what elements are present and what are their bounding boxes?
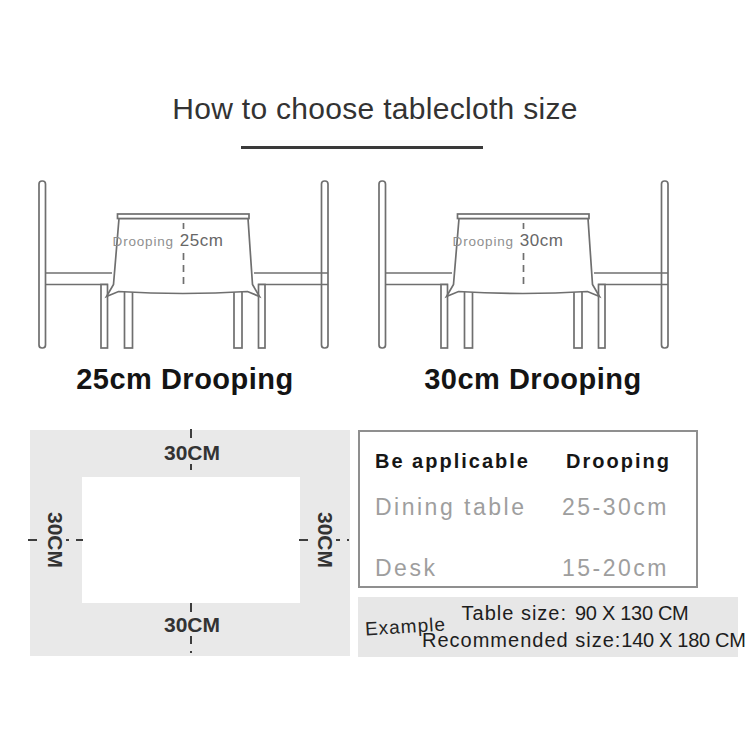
recommended-size-label: Recommended size: — [422, 629, 621, 651]
page-title: How to choose tablecloth size — [0, 92, 750, 126]
table-and-chairs-drawing — [379, 181, 668, 348]
drooping-word: Drooping — [453, 234, 514, 249]
dimension-label-right: 30CM — [314, 507, 336, 573]
table-size-value: 90 X 130 CM — [575, 602, 688, 624]
spec-row-dining-table-label: Dining table — [375, 494, 526, 521]
recommended-size-value: 140 X 180 CM — [621, 629, 745, 651]
tablecloth-size-guide: How to choose tablecloth size — [0, 0, 750, 750]
drooping-spec-table: Be applicable Drooping Dining table 25-3… — [358, 430, 698, 588]
example-box: Example Table size:90 X 130 CM Recommend… — [358, 597, 738, 657]
drooping-annotation: Drooping25cm — [113, 231, 224, 250]
table-scene-30cm: Drooping30cm — [360, 170, 700, 360]
table-scene-25cm: Drooping25cm — [20, 170, 360, 360]
drooping-annotation: Drooping30cm — [453, 231, 564, 250]
drooping-value: 30cm — [520, 231, 564, 250]
spec-header-drooping: Drooping — [566, 450, 671, 473]
dimension-label-bottom: 30CM — [159, 614, 225, 636]
table-top-rectangle — [82, 477, 300, 603]
title-underline — [241, 146, 483, 149]
table-and-chairs-drawing — [39, 181, 328, 348]
caption-30cm-drooping: 30cm Drooping — [383, 363, 683, 396]
example-recommended-line: Recommended size:140 X 180 CM — [422, 627, 728, 654]
example-lines: Table size:90 X 130 CM Recommended size:… — [422, 600, 728, 654]
spec-row-desk-value: 15-20cm — [562, 555, 669, 582]
drooping-word: Drooping — [113, 234, 174, 249]
dimension-label-left: 30CM — [44, 507, 66, 573]
drooping-value: 25cm — [180, 231, 224, 250]
caption-25cm-drooping: 25cm Drooping — [35, 363, 335, 396]
table-size-label: Table size: — [462, 602, 568, 624]
example-table-size-line: Table size:90 X 130 CM — [422, 600, 728, 627]
dimension-label-top: 30CM — [159, 442, 225, 464]
spec-header-applicable: Be applicable — [375, 450, 530, 473]
spec-row-dining-table-value: 25-30cm — [562, 494, 669, 521]
spec-row-desk-label: Desk — [375, 555, 437, 582]
